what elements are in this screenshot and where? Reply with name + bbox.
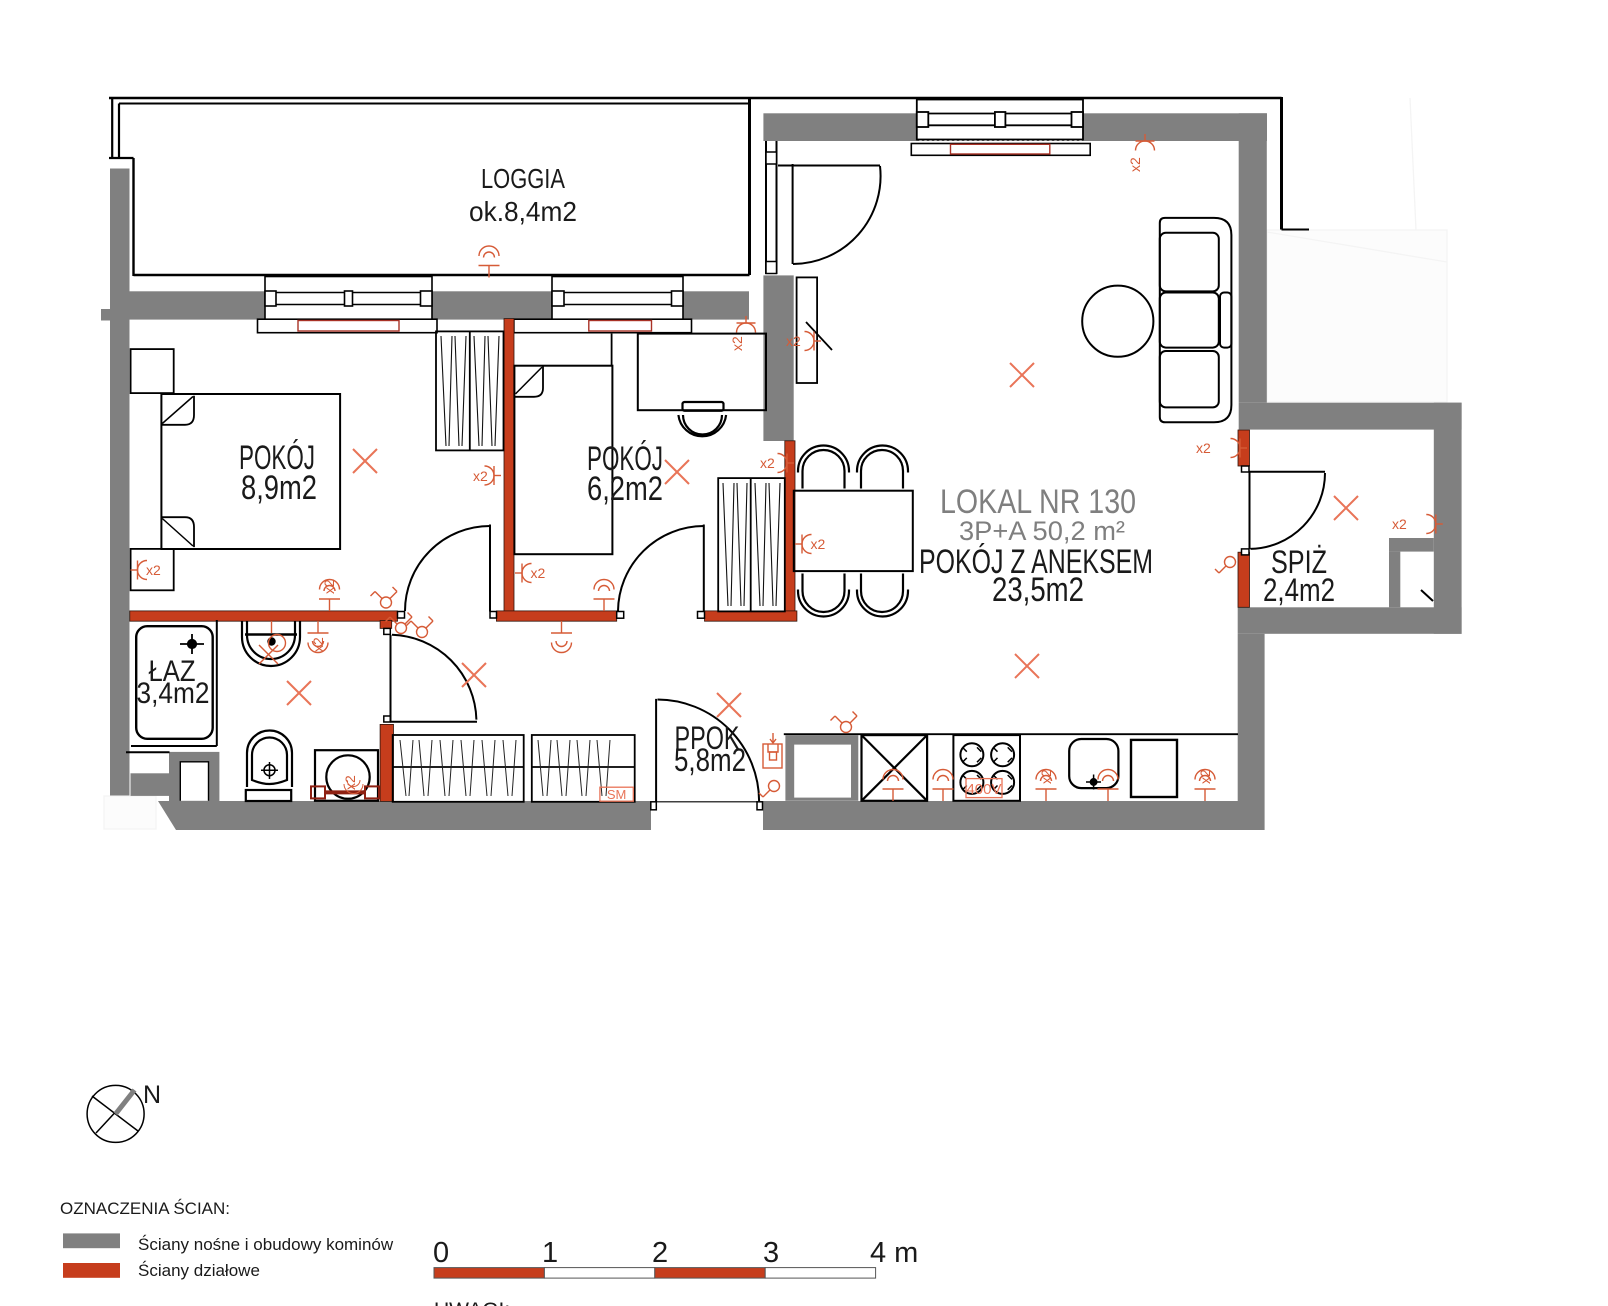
svg-text:Ściany nośne i obudowy kominów: Ściany nośne i obudowy kominów <box>138 1235 394 1254</box>
svg-text:5,8m2: 5,8m2 <box>674 742 746 778</box>
svg-text:x2: x2 <box>1196 440 1211 456</box>
svg-text:x2: x2 <box>760 455 775 471</box>
svg-text:x2: x2 <box>321 579 337 594</box>
svg-text:Ściany działowe: Ściany działowe <box>138 1261 260 1280</box>
svg-text:x2: x2 <box>310 637 326 652</box>
svg-text:x2: x2 <box>811 536 826 552</box>
svg-text:x2: x2 <box>786 333 801 349</box>
svg-text:23,5m2: 23,5m2 <box>992 571 1084 609</box>
svg-text:2: 2 <box>652 1237 668 1269</box>
svg-text:x2: x2 <box>729 336 745 351</box>
svg-text:ok.8,4m2: ok.8,4m2 <box>469 196 577 227</box>
svg-text:400V: 400V <box>966 781 1001 798</box>
svg-text:3: 3 <box>763 1237 779 1269</box>
svg-text:x2: x2 <box>1197 769 1213 784</box>
svg-text:x2: x2 <box>1038 769 1054 784</box>
svg-text:x2: x2 <box>1392 516 1407 532</box>
svg-text:1: 1 <box>542 1237 558 1269</box>
svg-text:x2: x2 <box>531 565 546 581</box>
svg-text:3,4m2: 3,4m2 <box>137 677 210 710</box>
svg-text:x2: x2 <box>146 562 161 578</box>
svg-text:4 m: 4 m <box>870 1237 918 1269</box>
svg-text:6,2m2: 6,2m2 <box>587 470 663 508</box>
svg-text:UWAGI:: UWAGI: <box>434 1299 510 1306</box>
svg-text:x2: x2 <box>473 468 488 484</box>
svg-text:3P+A 50,2 m²: 3P+A 50,2 m² <box>959 516 1125 546</box>
svg-text:0: 0 <box>433 1237 449 1269</box>
svg-text:2,4m2: 2,4m2 <box>1263 572 1335 608</box>
svg-text:8,9m2: 8,9m2 <box>241 469 317 507</box>
svg-text:LOGGIA: LOGGIA <box>481 163 565 194</box>
svg-text:x2: x2 <box>1127 157 1143 172</box>
svg-text:N: N <box>143 1081 161 1109</box>
svg-text:SM: SM <box>607 787 627 802</box>
svg-text:OZNACZENIA ŚCIAN:: OZNACZENIA ŚCIAN: <box>60 1199 230 1218</box>
